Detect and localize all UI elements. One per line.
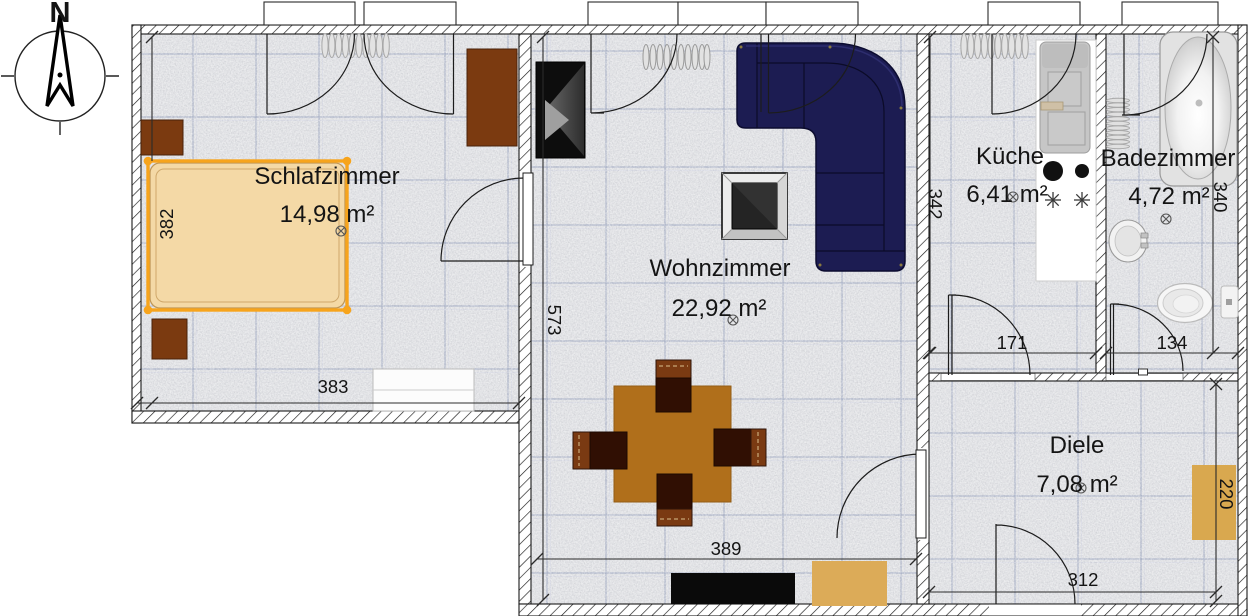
svg-text:7,08 m²: 7,08 m² — [1036, 471, 1117, 498]
svg-text:382: 382 — [156, 209, 177, 240]
svg-text:342: 342 — [925, 189, 946, 220]
svg-text:134: 134 — [1157, 332, 1188, 353]
svg-text:171: 171 — [997, 332, 1028, 353]
svg-text:6,41 m²: 6,41 m² — [966, 181, 1047, 208]
svg-text:Diele: Diele — [1050, 432, 1105, 459]
svg-text:22,92 m²: 22,92 m² — [672, 295, 767, 322]
svg-text:340: 340 — [1210, 182, 1231, 213]
svg-text:220: 220 — [1216, 479, 1237, 510]
svg-text:389: 389 — [711, 538, 742, 559]
svg-text:Schlafzimmer: Schlafzimmer — [254, 163, 399, 190]
svg-text:4,72 m²: 4,72 m² — [1128, 183, 1209, 210]
svg-text:Küche: Küche — [976, 143, 1044, 170]
svg-text:573: 573 — [544, 305, 565, 336]
svg-text:14,98 m²: 14,98 m² — [280, 201, 375, 228]
svg-text:383: 383 — [318, 376, 349, 397]
svg-text:N: N — [50, 0, 71, 29]
svg-text:Wohnzimmer: Wohnzimmer — [650, 255, 791, 282]
svg-text:Badezimmer: Badezimmer — [1101, 145, 1236, 172]
svg-text:312: 312 — [1068, 569, 1099, 590]
